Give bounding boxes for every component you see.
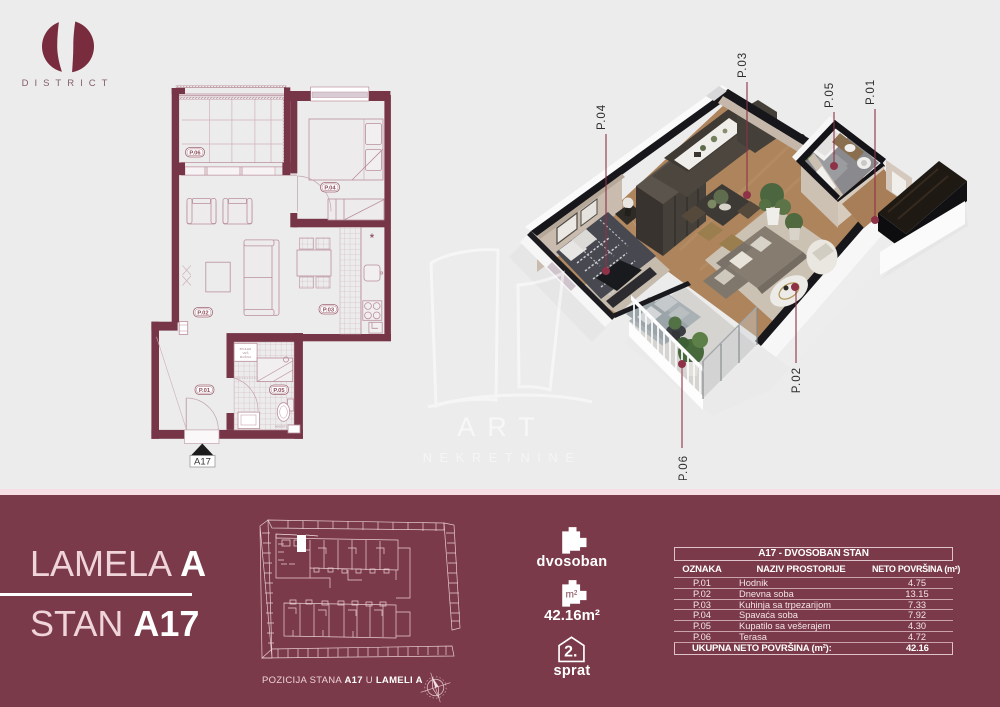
svg-text:P.06: P.06 (678, 455, 690, 480)
svg-text:P.02: P.02 (197, 310, 208, 316)
svg-text:ART: ART (457, 412, 547, 442)
svg-text:P.05: P.05 (824, 82, 836, 108)
svg-text:P.06: P.06 (189, 150, 201, 156)
svg-text:P.04: P.04 (324, 185, 336, 191)
svg-text:P.01: P.01 (865, 79, 877, 105)
svg-text:MAŠINA: MAŠINA (240, 354, 252, 359)
svg-text:P.03: P.03 (323, 307, 335, 313)
svg-text:600X971: 600X971 (275, 425, 287, 429)
svg-text:P.03: P.03 (737, 52, 749, 78)
svg-text:P.04: P.04 (596, 104, 608, 130)
svg-text:P.05: P.05 (273, 388, 285, 394)
svg-text:2.: 2. (564, 644, 577, 661)
svg-text:A17: A17 (194, 457, 211, 468)
svg-text:m²: m² (566, 589, 578, 600)
svg-text:P.02: P.02 (791, 367, 803, 393)
svg-text:P.01: P.01 (199, 388, 211, 394)
svg-text:*: * (370, 231, 375, 245)
svg-text:NEKRETNINE: NEKRETNINE (423, 450, 582, 465)
svg-text:DISTRICT: DISTRICT (22, 78, 114, 89)
